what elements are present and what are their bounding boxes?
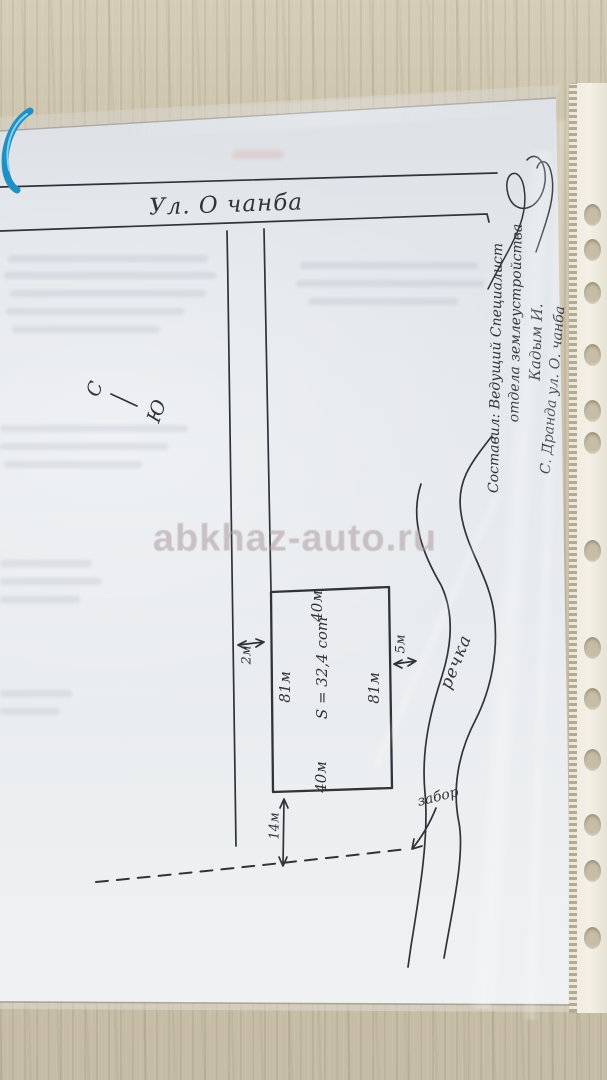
plot-bottom-dimension: 40м (312, 761, 330, 793)
fence-gap-label: 14м (268, 812, 283, 839)
fence-dashed-line (96, 849, 407, 882)
punch-hole (584, 239, 601, 261)
sleeve-crimped-seam (569, 84, 577, 1012)
plot-area-label: S = 32,4 сот (313, 617, 331, 719)
punch-hole (584, 749, 601, 771)
punch-hole (584, 432, 601, 454)
punch-hole (584, 540, 601, 562)
plot-right-dimension: 81м (365, 672, 383, 704)
sleeve-hole-strip (577, 83, 607, 1013)
plot-left-dimension: 81м (276, 671, 294, 703)
punch-hole (584, 637, 601, 659)
photo-of-plot-plan: Ул. О чанба С Ю 2м 40м 81м 81м 40м S = 3… (0, 0, 607, 1080)
punch-hole (584, 814, 601, 836)
punch-hole (584, 688, 601, 710)
punch-hole (584, 344, 601, 366)
punch-hole (584, 400, 601, 422)
river-gap-label: 5м (394, 634, 409, 653)
street-name-label: Ул. О чанба (149, 189, 304, 220)
compass-line (111, 394, 137, 406)
watermark-text: abkhaz-auto.ru (153, 518, 437, 561)
punch-hole (584, 282, 601, 304)
punch-hole (584, 927, 601, 949)
punch-hole (584, 204, 601, 226)
street-top-line (0, 173, 497, 187)
road-width-label: 2м (240, 645, 255, 664)
fence-pointer-arrow (412, 808, 436, 849)
punch-hole (584, 860, 601, 882)
